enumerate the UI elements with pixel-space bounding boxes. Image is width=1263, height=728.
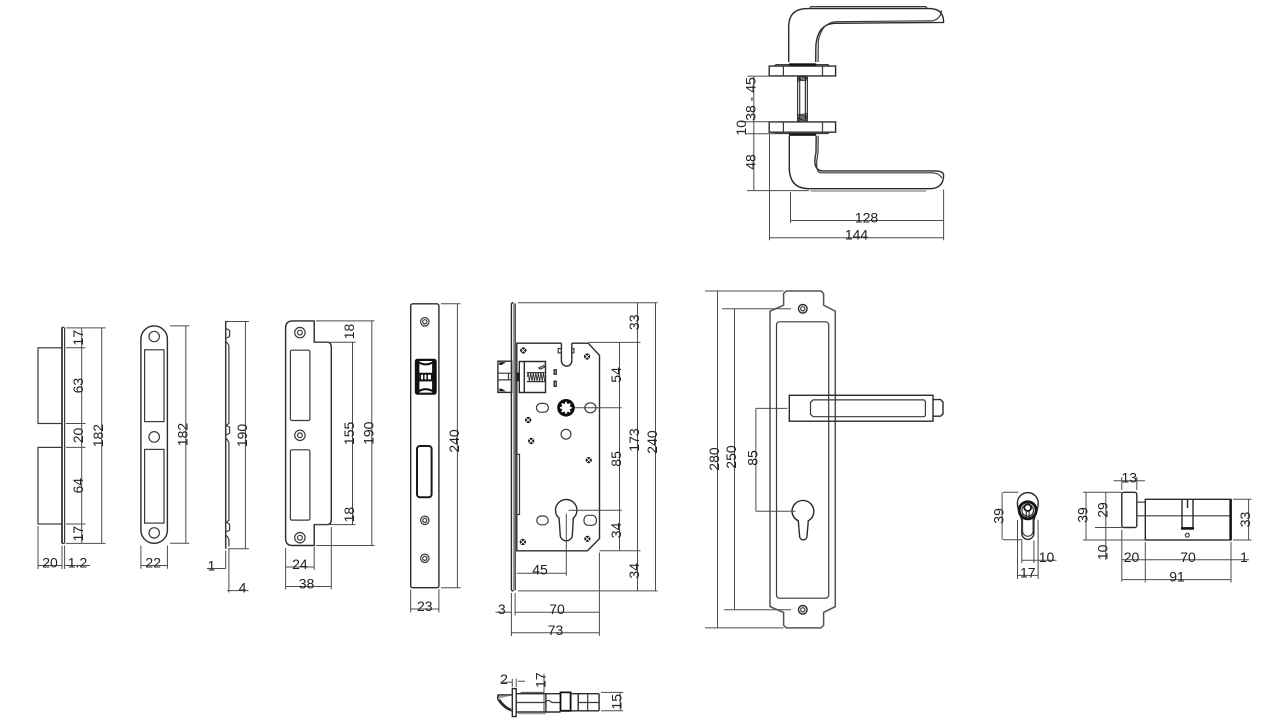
svg-text:17: 17: [533, 672, 549, 688]
svg-text:38: 38: [299, 576, 315, 592]
svg-text:1: 1: [208, 558, 216, 574]
svg-text:91: 91: [1169, 569, 1185, 585]
svg-text:17: 17: [70, 330, 86, 346]
svg-text:1: 1: [1240, 549, 1248, 565]
svg-text:73: 73: [548, 622, 564, 638]
svg-text:34: 34: [626, 563, 642, 579]
svg-text:45: 45: [532, 562, 548, 578]
svg-text:4: 4: [239, 580, 247, 596]
svg-text:24: 24: [292, 556, 308, 572]
svg-text:39: 39: [991, 508, 1007, 524]
svg-text:63: 63: [70, 378, 86, 394]
svg-text:13: 13: [1122, 470, 1138, 486]
svg-text:17: 17: [70, 526, 86, 542]
svg-text:54: 54: [608, 367, 624, 383]
svg-text:85: 85: [608, 451, 624, 467]
svg-text:23: 23: [417, 598, 433, 614]
svg-text:20: 20: [42, 555, 58, 571]
svg-text:33: 33: [626, 314, 642, 330]
svg-text:85: 85: [744, 450, 760, 466]
svg-text:190: 190: [360, 421, 376, 445]
svg-text:182: 182: [90, 424, 106, 448]
svg-text:2: 2: [500, 671, 508, 687]
svg-text:144: 144: [845, 227, 869, 243]
svg-text:39: 39: [1075, 507, 1091, 523]
svg-text:20: 20: [70, 428, 86, 444]
svg-text:15: 15: [609, 694, 625, 710]
svg-text:48: 48: [742, 154, 758, 170]
svg-text:10: 10: [733, 120, 749, 136]
svg-text:155: 155: [341, 422, 357, 446]
svg-text:20: 20: [1124, 549, 1140, 565]
svg-text:190: 190: [234, 424, 250, 448]
svg-text:240: 240: [644, 430, 660, 454]
svg-text:10: 10: [1039, 549, 1055, 565]
svg-text:33: 33: [1237, 512, 1253, 528]
svg-text:280: 280: [706, 447, 722, 471]
svg-text:22: 22: [145, 555, 161, 571]
svg-text:70: 70: [549, 601, 565, 617]
svg-text:3: 3: [498, 601, 506, 617]
svg-text:1.2: 1.2: [68, 555, 88, 571]
svg-text:10: 10: [1094, 544, 1110, 560]
svg-text:182: 182: [174, 423, 190, 447]
svg-text:29: 29: [1094, 502, 1110, 518]
svg-text:17: 17: [1020, 564, 1036, 580]
svg-text:250: 250: [723, 445, 739, 469]
svg-text:64: 64: [70, 478, 86, 494]
svg-text:18: 18: [341, 324, 357, 340]
svg-text:240: 240: [446, 429, 462, 453]
svg-text:34: 34: [608, 522, 624, 538]
svg-text:18: 18: [341, 507, 357, 523]
svg-text:38 - 45: 38 - 45: [742, 77, 758, 121]
svg-text:173: 173: [626, 428, 642, 452]
svg-text:70: 70: [1180, 549, 1196, 565]
svg-text:128: 128: [855, 210, 879, 226]
